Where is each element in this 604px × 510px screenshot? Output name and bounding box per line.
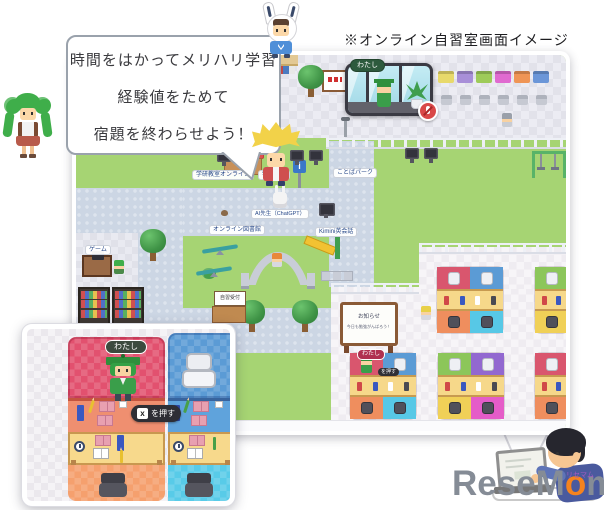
booth-top-row [535,267,566,289]
label-game[interactable]: ゲーム [85,245,111,255]
press-key-tooltip: を押す [378,368,399,376]
arch-pillar [307,273,315,289]
desk-item-icon [491,296,496,305]
booth-desk [350,375,416,397]
office-chair-icon [99,473,127,501]
person-eye [556,452,559,455]
study-booth[interactable] [438,353,504,419]
plaza-desk [438,71,454,83]
resemom-logo-ruby: リセマム [566,470,594,480]
street-lamp-icon [341,117,350,137]
desk-leg [157,460,162,465]
chair-icon [498,95,509,105]
booth-desk [535,375,566,397]
desk-item-icon [475,296,480,305]
bunny-hood-character [258,2,304,58]
booth-cell [437,267,470,289]
npc-character [272,253,282,267]
video-call-panel: わたし [345,63,433,116]
booth-top-row [437,267,503,289]
office-chair-icon [449,402,461,414]
tree-icon [140,229,166,261]
bubble-line: 経験値をためて [68,79,279,116]
pencil-icon [120,450,123,463]
player-name-badge: わたし [350,59,385,72]
desk-item-icon [476,382,481,391]
booth-bottom-row [438,397,504,419]
booth-desk [437,289,503,311]
paper-icon [215,401,223,408]
office-chair-icon [394,402,406,414]
desk-item-icon [460,296,465,305]
office-chair-icon [448,316,460,328]
book-icon [193,401,209,412]
booth-bottom-row [350,397,416,419]
desk-item-icon [445,382,450,391]
green-hair-character [3,92,53,164]
tree-icon [292,300,318,332]
npc-character [421,306,431,320]
player-avatar [107,353,139,401]
open-book-icon [187,448,203,459]
desk-item-icon [461,382,466,391]
book-icon [99,401,115,412]
play-blocks [321,271,353,281]
white-chair-icon [546,272,558,285]
white-chair-icon [449,358,461,371]
desk-item-icon [542,382,547,391]
office-chair-icon [546,402,558,414]
desk-item-icon [357,382,362,391]
bubble-line: 時間をはかってメリハリ学習 [68,42,279,79]
book-icon [191,415,207,426]
white-chair-icon [481,272,493,285]
label-kimini[interactable]: Kimini英会話 [315,227,357,237]
plaza-desk [495,71,511,83]
booth-cell [470,311,503,333]
desk-item-icon [373,382,378,391]
desk-leg [171,460,176,465]
office-chair-icon [482,402,494,414]
white-chair-icon [182,353,216,397]
label-ai-teacher[interactable]: AI先生（ChatGPT） [251,209,309,219]
book-icon [97,415,113,426]
pc-desk-kimini [319,203,353,227]
label-online-library[interactable]: オンライン図書館 [209,225,265,235]
office-chair-icon [185,473,213,501]
chair-icon [517,95,528,105]
chair-icon [441,95,452,105]
bookshelf-icon [112,287,144,327]
press-key-tooltip: x を押す [131,405,181,422]
booth-cell [471,397,504,419]
booth-cell [350,397,383,419]
mic-muted-icon[interactable] [418,101,438,121]
book-icon [77,405,84,421]
booth-cell [535,311,566,333]
booth-cell [470,267,503,289]
fence-room [419,243,566,254]
booth-bottom-row [437,311,503,333]
booth-cell [471,353,504,375]
desk-item-icon [444,296,449,305]
booth-top-row [438,353,504,375]
booth-desk [535,289,566,311]
white-chair-icon [448,272,460,285]
paper-icon [119,401,127,408]
book-icon [189,435,205,446]
study-booth[interactable] [535,353,566,419]
study-booth[interactable] [437,267,503,333]
desk-item-icon [556,296,561,305]
open-book-icon [93,448,109,459]
blonde-spiky-character [252,122,300,186]
booth-cell [535,353,566,375]
booth-cell [438,397,471,419]
game-corner-desk [82,255,112,277]
clock-icon [173,441,184,452]
player-name-badge: わたし [357,349,385,360]
pencil-icon [213,437,216,450]
speech-bubble: 時間をはかってメリハリ学習 経験値をためて 宿題を終わらせよう！ [66,35,281,155]
seesaw-icon [196,267,232,277]
study-booth[interactable]: わたしを押す [350,353,416,419]
booth-cell [438,353,471,375]
reception-booth: 自習受付 [212,291,246,325]
desk-row [438,71,556,111]
npc-character [502,113,512,127]
chair-icon [479,95,490,105]
desk-closeup-inset: わたし x を押す [22,324,235,506]
bird-icon [221,210,228,216]
bookshelf-icon [78,287,110,327]
booth-cell [437,311,470,333]
desk-item-icon [542,296,547,305]
swing-icon [532,151,566,178]
booth-cell [535,267,566,289]
ai-rabbit-character [273,190,288,209]
reception-sign: 自習受付 [214,291,246,306]
office-chair-icon [361,402,373,414]
white-chair-icon [546,358,558,371]
arch-pillar [241,273,249,289]
white-chair-icon [482,358,494,371]
booth-cell [535,397,566,419]
player-avatar [377,81,391,107]
book-icon [95,435,111,446]
fence-room-2 [331,283,419,294]
key-icon: x [137,408,148,419]
pc-desks [405,148,439,172]
desk-leg [225,460,230,465]
plaza-desk [533,71,549,83]
page: ※オンライン自習室画面イメージ i [0,0,604,510]
clock-icon [74,441,85,452]
whiteboard: お知らせ 今日も勉強がんばろう！ [340,302,398,346]
booth-desk [438,375,504,397]
tree-icon [298,65,324,97]
booth-cell [383,397,416,419]
slide-icon [303,235,343,261]
person-hair [546,428,586,456]
plaza-desk [476,71,492,83]
plaza-desk [514,71,530,83]
player-name-badge: わたし [105,340,147,354]
fence-top [326,138,566,149]
desk-item-icon [556,382,561,391]
desk-leg [71,460,76,465]
desk-item-icon [404,382,409,391]
study-booth[interactable] [535,267,566,333]
booth-bottom-row [535,311,566,333]
caption: ※オンライン自習室画面イメージ [344,30,569,50]
plaza-desk [457,71,473,83]
npc-character [114,260,124,274]
seesaw-icon [202,245,238,255]
booth-top-row [535,353,566,375]
bubble-line: 宿題を終わらせよう！ [68,116,279,153]
desk-item-icon [492,382,497,391]
office-chair-icon [481,316,493,328]
chair-icon [460,95,471,105]
chair-icon [536,95,547,105]
desk-item-icon [388,382,393,391]
booth-bottom-row [535,397,566,419]
person-ear [573,452,580,459]
label-kotoba-park[interactable]: ことばパーク [333,168,377,178]
office-chair-icon [546,316,558,328]
